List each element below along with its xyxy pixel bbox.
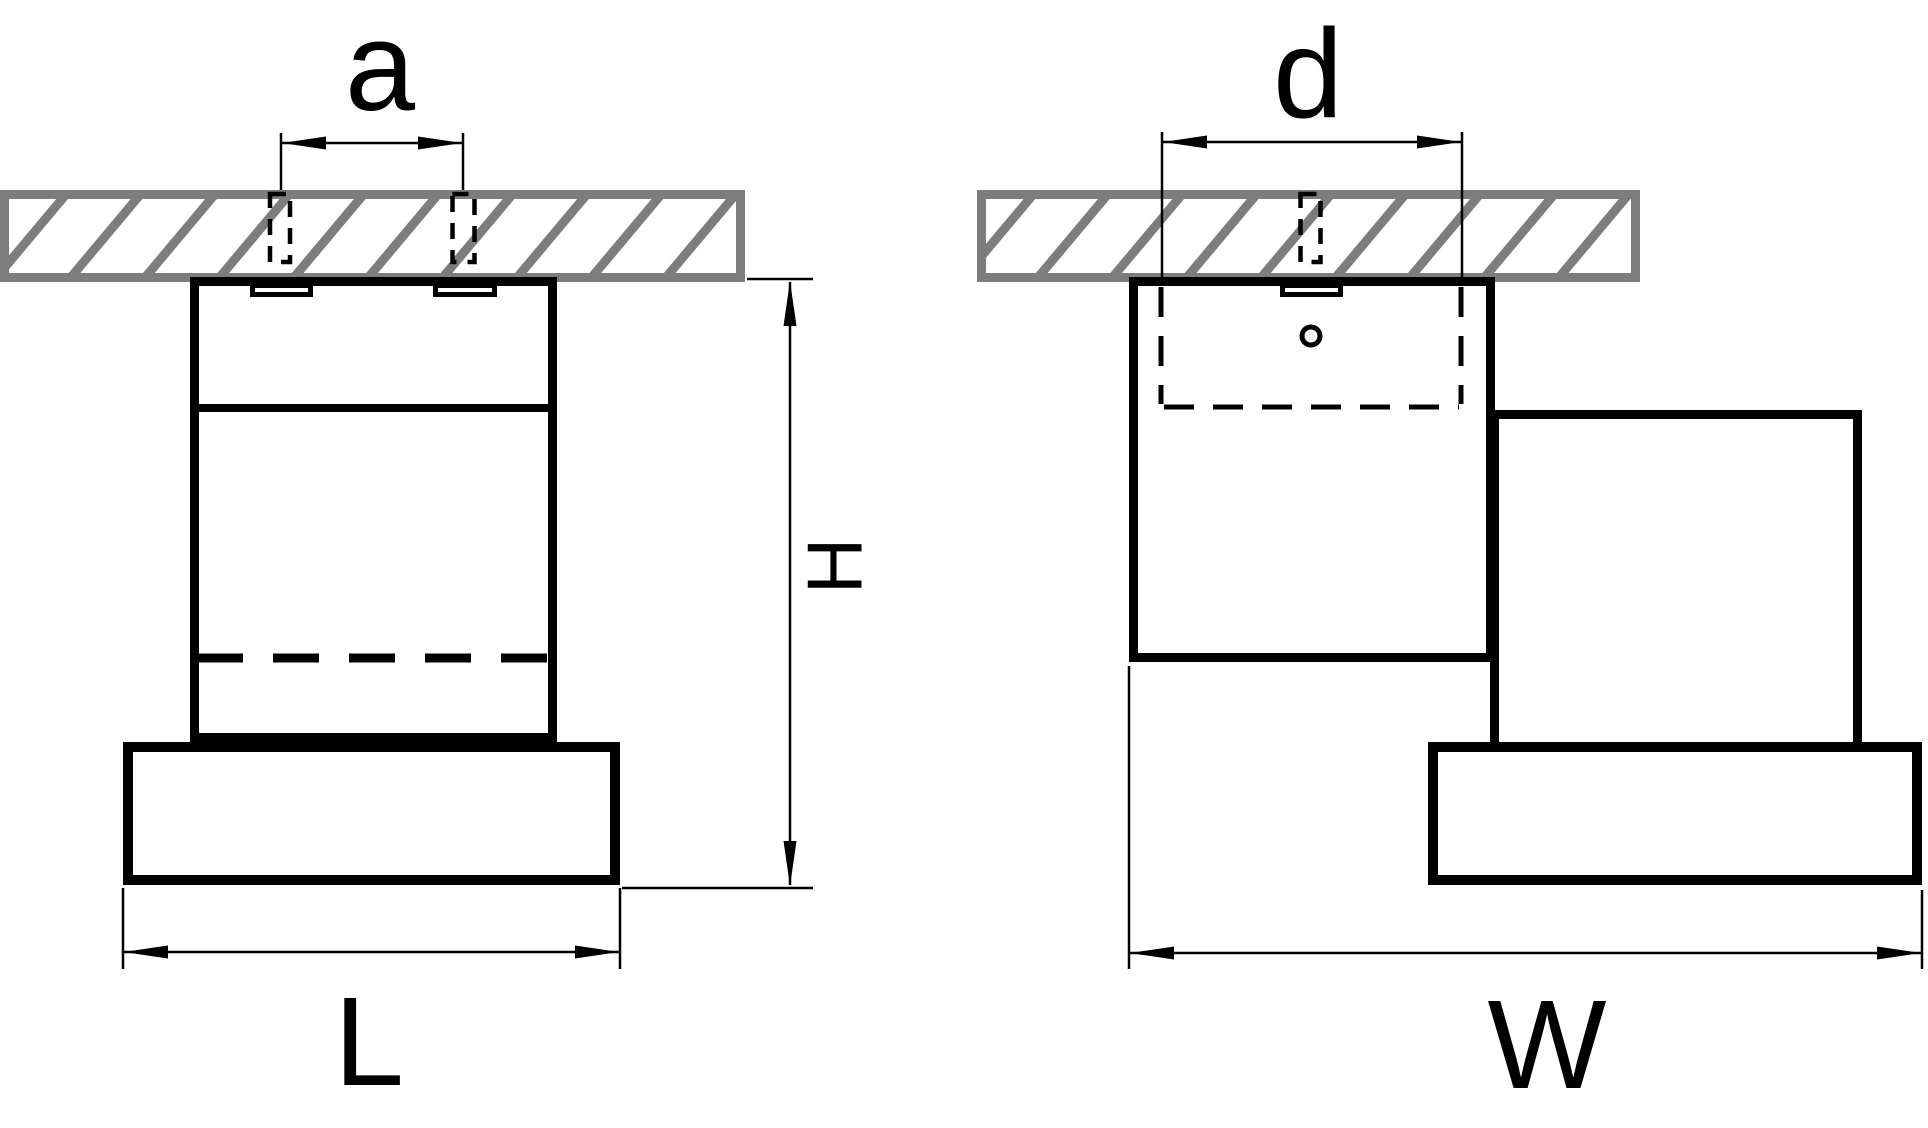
dim-a-label: a [345,0,416,137]
body-front [195,282,553,738]
mounting-clip-left-1 [253,286,311,295]
dim-d-arrow-right [1417,136,1461,149]
dim-H-label: H [790,538,878,594]
technical-drawing-canvas: a L H [0,0,1928,1128]
dimension-H: H [622,279,878,888]
luminaire-dimension-drawing: a L H [0,0,1928,1128]
base-side [1433,747,1917,880]
dim-L-arrow-right [575,946,619,959]
dim-W-arrow-right [1877,947,1921,960]
mounting-clip-left-2 [436,286,495,295]
dim-L-label: L [334,971,404,1112]
ceiling-section-right [982,195,1636,278]
dim-d-arrow-left [1163,136,1207,149]
dim-H-arrow-top [784,281,797,326]
dim-W-label: W [1488,974,1607,1115]
dimension-L: L [123,888,620,1112]
ceiling-section-left [5,195,741,278]
front-view: a L H [5,0,879,1112]
dim-d-label: d [1273,3,1343,144]
dim-a-arrow-right [418,137,462,150]
dimension-a: a [281,0,463,190]
dim-L-arrow-left [124,946,168,959]
base-front [128,747,615,880]
mounting-clip-right [1283,286,1341,295]
lamp-head-side [1495,415,1858,748]
screw-hole [1302,327,1320,345]
dim-a-arrow-left [282,137,326,150]
dim-H-arrow-bottom [784,841,797,886]
dim-W-arrow-left [1130,947,1174,960]
side-view: d W [982,3,1923,1115]
